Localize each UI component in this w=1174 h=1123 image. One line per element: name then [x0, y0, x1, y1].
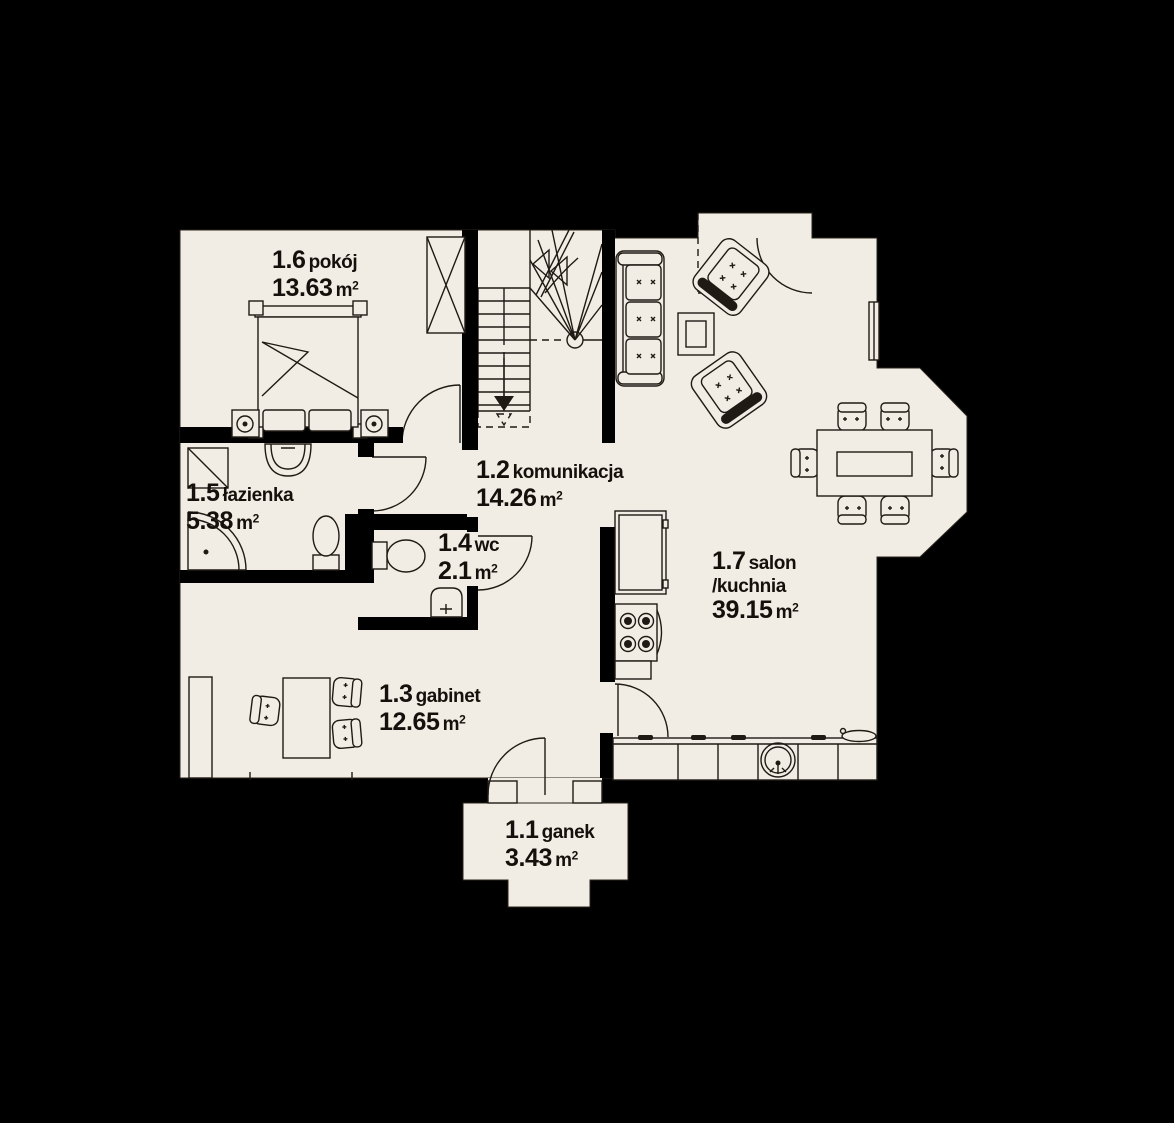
entry-jamb-right [573, 781, 602, 803]
room-area: 14.26 [476, 484, 537, 512]
stove [615, 604, 662, 661]
window-left-wall [189, 677, 212, 778]
wc-toilet [372, 540, 425, 572]
room-label-komunikacja: 1.2komunikacja 14.26m2 [476, 458, 623, 511]
room-area: 5.38 [186, 507, 233, 535]
dining-chair [881, 496, 909, 524]
dining-chair [881, 403, 909, 431]
dining-chair [930, 449, 958, 477]
room-label-wc: 1.4wc 2.1m2 [438, 531, 499, 584]
entry-jamb-left [488, 781, 517, 803]
room-name: ganek [542, 822, 595, 843]
room-label-ganek: 1.1ganek 3.43m2 [505, 818, 594, 871]
wall-kitchen [600, 527, 615, 682]
dining-chair [791, 449, 819, 477]
wall-wc-top [345, 514, 467, 530]
room-area: 2.1 [438, 557, 472, 585]
dining-table [817, 430, 932, 496]
desk-chair [332, 677, 362, 707]
room-name-2: /kuchnia [712, 577, 798, 596]
nightstand-right [361, 410, 388, 437]
room-label-lazienka: 1.5łazienka 5.38m2 [186, 481, 293, 534]
room-code: 1.2 [476, 456, 510, 484]
coffee-table [678, 313, 714, 355]
wall-stairs-livingroom [602, 230, 615, 443]
dining-chair [838, 496, 866, 524]
fridge [615, 511, 668, 594]
desk-chair [332, 719, 362, 749]
room-name: salon [749, 553, 797, 574]
room-name: pokój [309, 252, 358, 273]
room-label-salon: 1.7salon /kuchnia 39.15m2 [712, 549, 798, 623]
room-area: 12.65 [379, 708, 440, 736]
desk [283, 678, 330, 758]
wardrobe [427, 237, 465, 333]
floor-plan-drawing [0, 0, 1174, 1123]
room-name: gabinet [416, 686, 481, 707]
wall-bathroom-bottom [180, 570, 372, 583]
wall-wc-corner [345, 530, 372, 583]
room-name: komunikacja [513, 462, 624, 483]
room-area: 3.43 [505, 844, 552, 872]
bathroom-toilet [313, 516, 339, 570]
room-code: 1.3 [379, 680, 413, 708]
pillow [263, 410, 305, 431]
pillow [309, 410, 351, 431]
room-name: łazienka [223, 485, 294, 506]
room-code: 1.5 [186, 479, 220, 507]
floor-plan: 1.6pokój 13.63m2 1.2komunikacja 14.26m2 … [0, 0, 1174, 1123]
room-code: 1.7 [712, 547, 746, 575]
wc-sink [431, 588, 462, 617]
dining-chair [838, 403, 866, 431]
room-code: 1.1 [505, 816, 539, 844]
desk-chair [249, 695, 280, 726]
kitchen-cabinet [615, 661, 651, 679]
room-area: 39.15 [712, 596, 773, 624]
room-label-gabinet: 1.3gabinet 12.65m2 [379, 682, 480, 735]
nightstand-left [232, 410, 259, 437]
wall-kitchen-corner [600, 733, 613, 778]
room-code: 1.6 [272, 246, 306, 274]
room-area: 13.63 [272, 274, 333, 302]
wall-wc-bottom [358, 617, 478, 630]
room-name: wc [475, 535, 500, 556]
room-label-pokoj: 1.6pokój 13.63m2 [272, 248, 358, 301]
bed [249, 301, 367, 438]
wall-bathroom-right-top [358, 443, 374, 457]
wall-wc-right-bottom [467, 586, 478, 630]
room-code: 1.4 [438, 529, 472, 557]
sofa [616, 251, 664, 386]
